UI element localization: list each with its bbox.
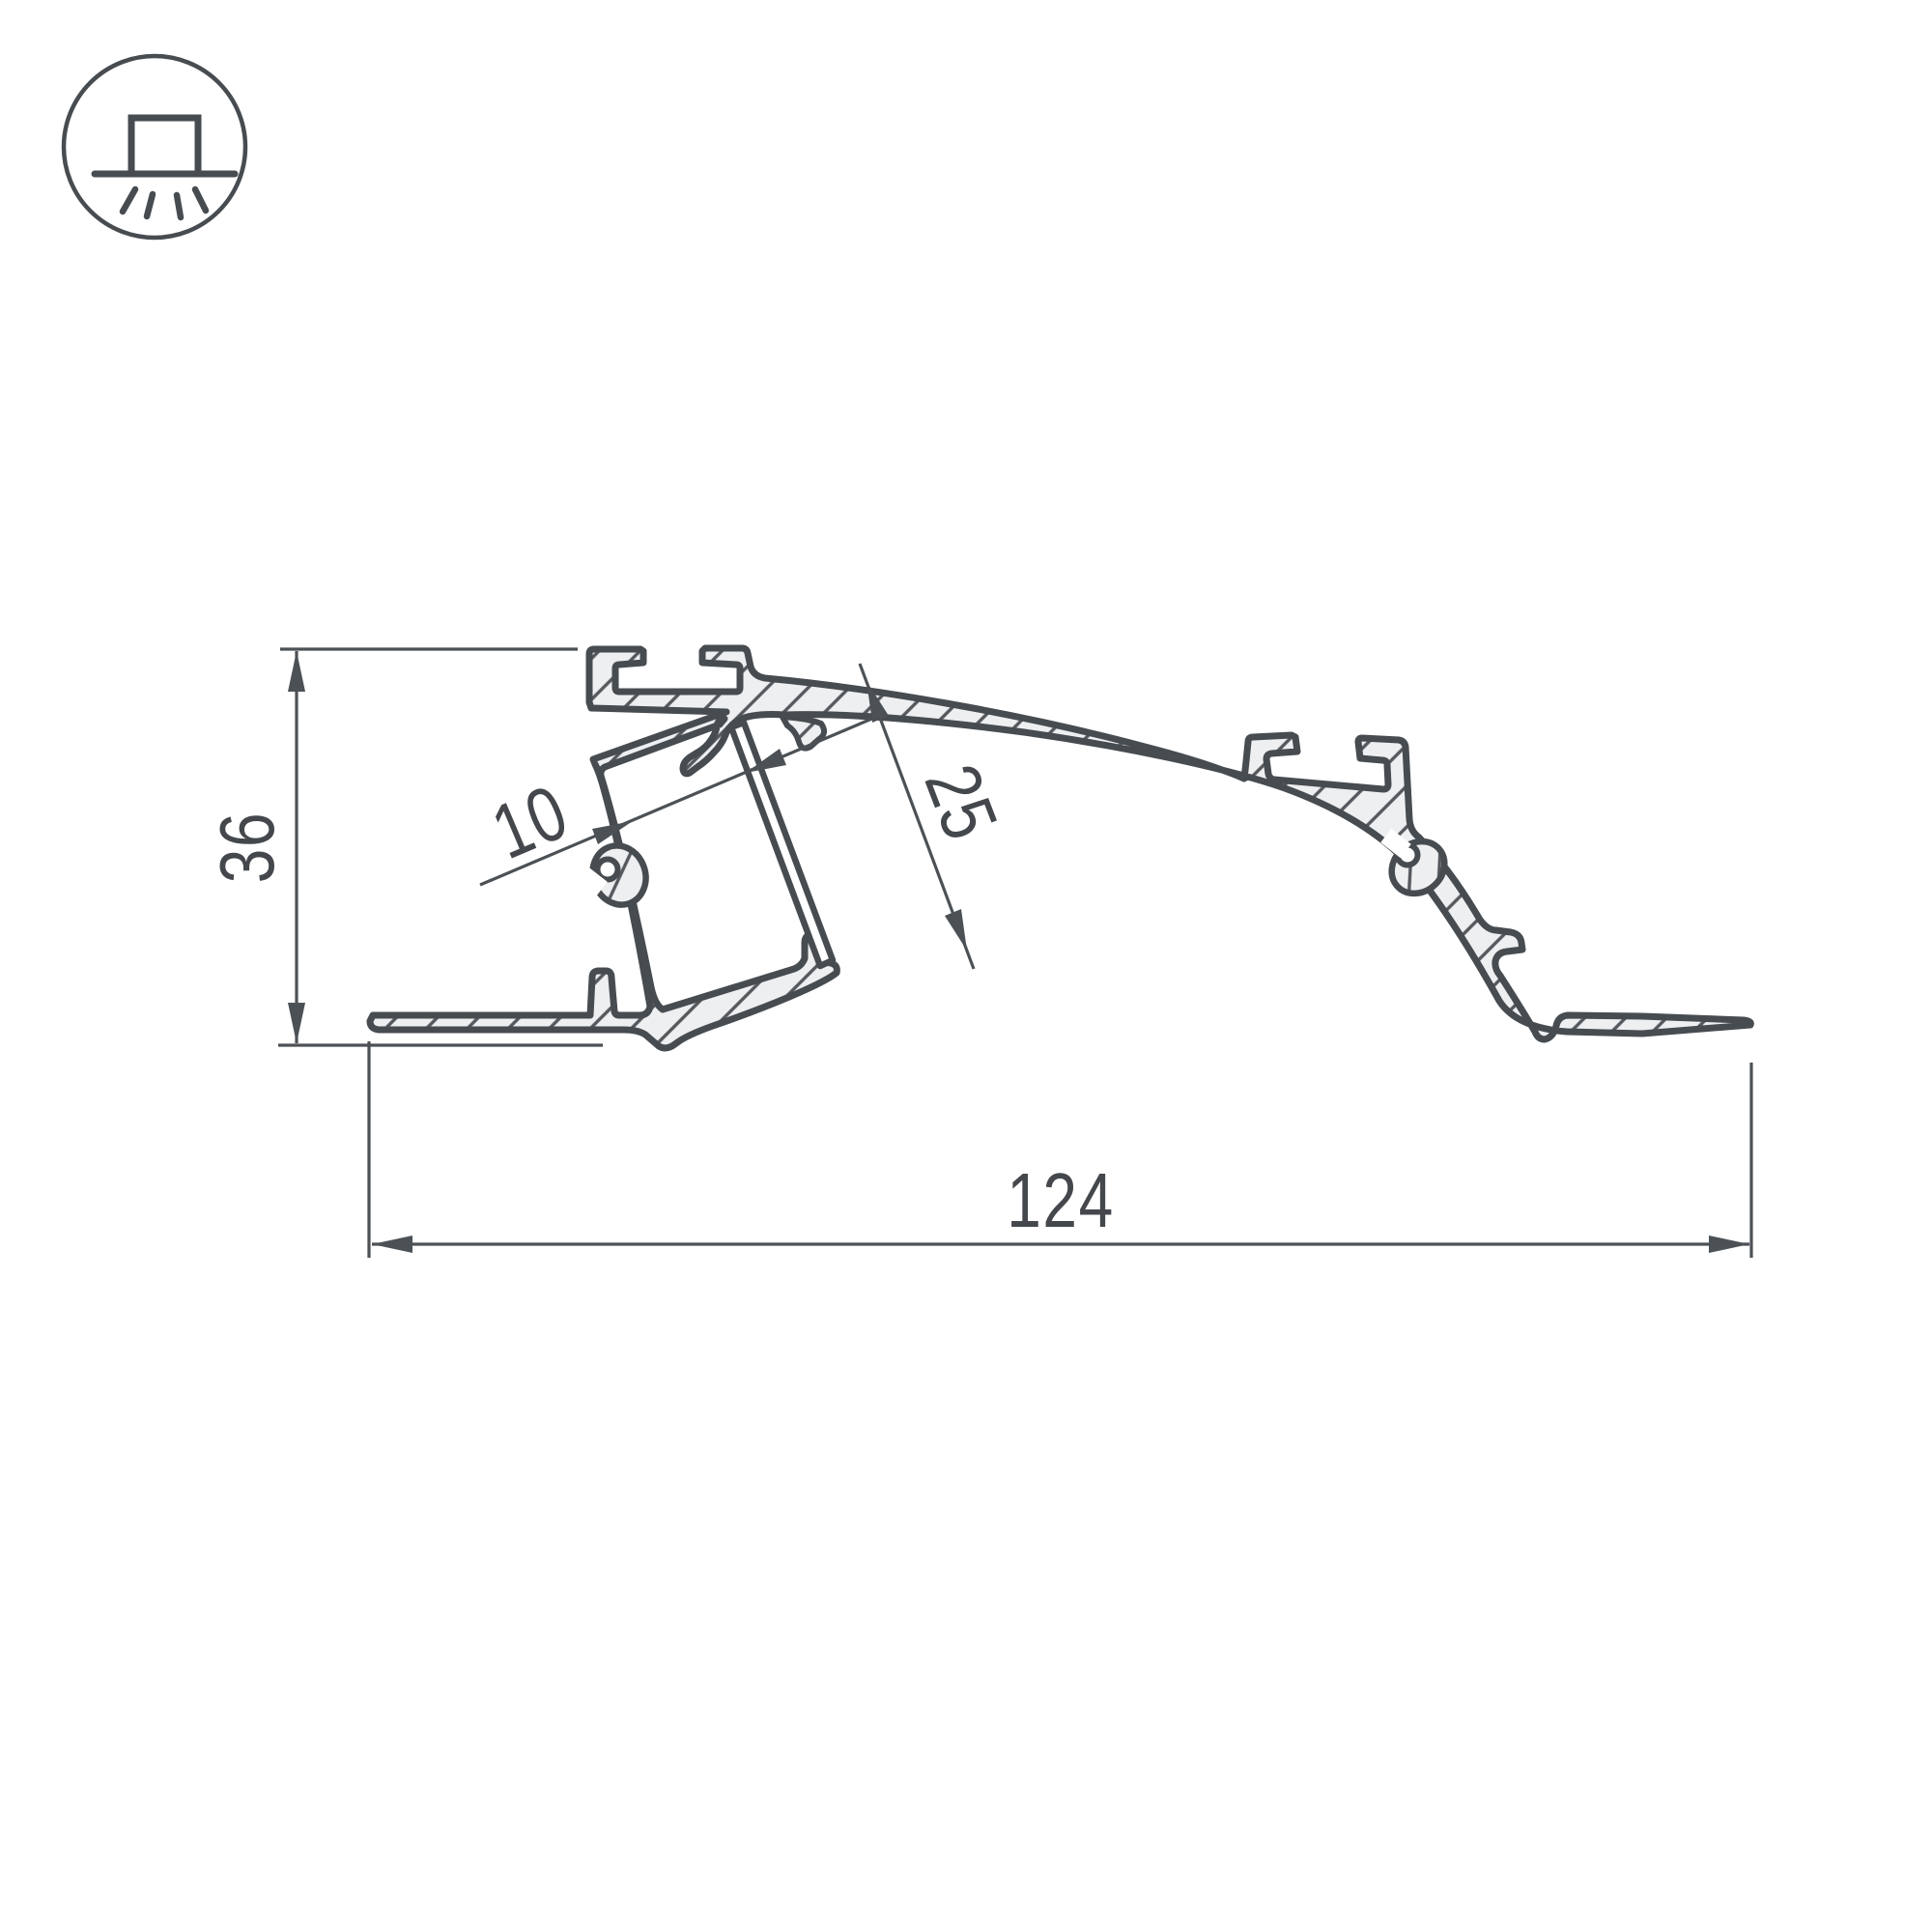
arrowhead-down (288, 1003, 305, 1043)
drawing-canvas: 36 10 25 124 (0, 0, 1932, 1932)
arrowhead-up (288, 651, 305, 692)
icon-light-rays (123, 189, 206, 217)
recessed-downlight-icon (64, 56, 245, 238)
arrowhead-down-right (945, 909, 967, 951)
icon-fixture-square (131, 118, 198, 174)
label-channel-width-10: 10 (480, 768, 580, 875)
arrowhead-right (1709, 1236, 1749, 1253)
icon-circle (64, 56, 245, 238)
label-width-124: 124 (1007, 1157, 1115, 1243)
cover-snap-tooth (782, 717, 824, 749)
dimension-labels: 36 10 25 124 (204, 753, 1115, 1243)
screw-port-wall (577, 838, 654, 913)
label-height-36: 36 (204, 811, 290, 883)
profile-technical-drawing: 36 10 25 124 (0, 0, 1932, 1932)
arrowhead-left (372, 1236, 412, 1253)
